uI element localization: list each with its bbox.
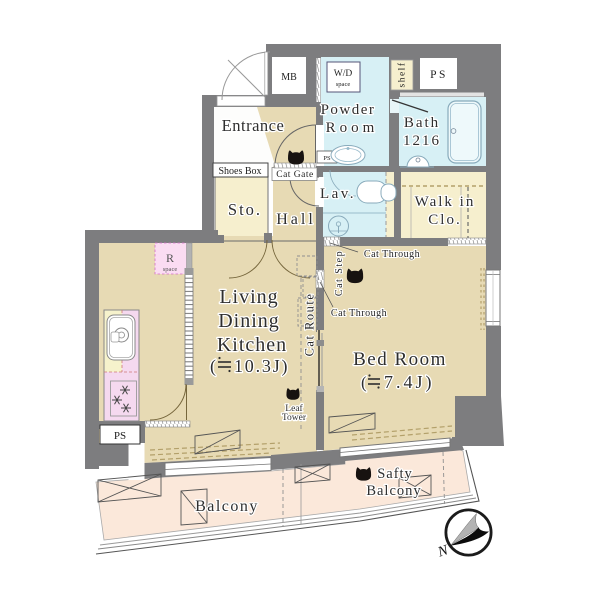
svg-text:Sto.: Sto. (228, 200, 262, 219)
svg-text:(: ( (210, 356, 216, 377)
svg-text:Clo.: Clo. (428, 212, 461, 228)
svg-text:Hall: Hall (276, 211, 316, 228)
svg-text:Cat Route: Cat Route (303, 293, 317, 357)
svg-text:Cat Step: Cat Step (334, 250, 345, 296)
svg-text:PS: PS (114, 430, 126, 442)
svg-text:Bed Room: Bed Room (353, 349, 447, 370)
svg-text:Tower: Tower (282, 413, 307, 423)
svg-text:W/D: W/D (334, 69, 353, 79)
svg-text:Living: Living (219, 286, 278, 308)
svg-text:Bath: Bath (404, 115, 440, 131)
svg-text:Dining: Dining (218, 310, 280, 332)
svg-text:10.3J): 10.3J) (234, 356, 289, 377)
svg-text:R: R (166, 251, 174, 265)
svg-text:Shoes Box: Shoes Box (218, 166, 261, 177)
svg-text:1216: 1216 (403, 133, 441, 149)
svg-text:7.4J): 7.4J) (384, 372, 435, 393)
svg-text:Balcony: Balcony (366, 483, 421, 499)
svg-text:space: space (163, 266, 178, 273)
svg-text:Lav.: Lav. (320, 186, 356, 202)
svg-text:Entrance: Entrance (222, 116, 285, 135)
svg-text:shelf: shelf (397, 62, 408, 88)
svg-text:Balcony: Balcony (195, 498, 259, 515)
svg-text:(: ( (361, 373, 367, 392)
svg-text:Kitchen: Kitchen (217, 334, 287, 356)
svg-text:Cat Through: Cat Through (364, 249, 420, 260)
svg-text:Powder: Powder (321, 102, 376, 118)
svg-text:Cat Gate: Cat Gate (276, 170, 314, 180)
svg-text:Walk in: Walk in (415, 194, 476, 210)
svg-text:space: space (336, 81, 351, 88)
svg-text:MB: MB (281, 72, 297, 83)
svg-text:PS: PS (430, 69, 448, 81)
svg-text:Room: Room (326, 120, 379, 136)
svg-text:Cat Through: Cat Through (331, 308, 387, 319)
svg-text:PS: PS (323, 155, 331, 162)
svg-text:Safty: Safty (377, 466, 413, 482)
